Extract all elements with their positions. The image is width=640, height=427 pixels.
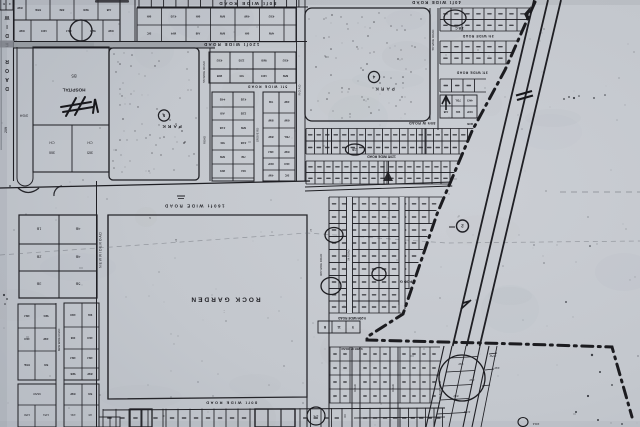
svg-text:7/B: 7/B	[241, 155, 245, 159]
svg-text:4B: 4B	[75, 255, 80, 259]
svg-text:40ft WIDE ROAD: 40ft WIDE ROAD	[411, 0, 461, 5]
svg-text:40ft WIDE ROAD: 40ft WIDE ROAD	[319, 254, 323, 276]
svg-text:43/J: 43/J	[66, 29, 72, 33]
svg-text:PARK: PARK	[373, 86, 394, 91]
svg-text:ROCK GARDEN: ROCK GARDEN	[189, 296, 260, 303]
svg-text:5ft WIDE ROAD: 5ft WIDE ROAD	[431, 30, 435, 51]
svg-text:4/W: 4/W	[269, 32, 274, 36]
svg-text:5ft WIDE ROAD: 5ft WIDE ROAD	[247, 84, 287, 88]
svg-text::: :	[223, 310, 224, 315]
svg-text:A/8: A/8	[220, 112, 225, 116]
svg-text:FOO G: FOO G	[400, 280, 412, 284]
svg-text:160ft WIDE ROAD: 160ft WIDE ROAD	[163, 203, 224, 208]
svg-text:B/W: B/W	[467, 122, 473, 126]
svg-text:41/3: 41/3	[87, 336, 93, 340]
svg-text:8/W: 8/W	[283, 74, 288, 78]
svg-text:9/H: 9/H	[88, 313, 92, 317]
svg-text:12/3: 12/3	[240, 112, 246, 116]
svg-text:1: 1	[175, 238, 177, 242]
svg-text:3/M: 3/M	[59, 8, 64, 12]
svg-text:R O A D: R O A D	[298, 84, 302, 96]
svg-text:41/3: 41/3	[219, 126, 225, 130]
svg-text:N E W W I D E R O A D: N E W W I D E R O A D	[99, 232, 103, 268]
svg-text:A/8: A/8	[195, 32, 200, 36]
svg-text:R/3: R/3	[70, 336, 75, 340]
svg-text:44/3: 44/3	[240, 141, 246, 145]
svg-text:5/C: 5/C	[285, 174, 289, 178]
svg-text:80ft W ROAD: 80ft W ROAD	[409, 121, 436, 125]
svg-text:20ft: 20ft	[4, 127, 8, 133]
svg-text:11: 11	[337, 325, 341, 329]
svg-text:O: O	[5, 67, 9, 73]
svg-text:43/J: 43/J	[268, 150, 274, 154]
svg-text:7/B: 7/B	[269, 100, 273, 104]
svg-text:ROAD: ROAD	[391, 384, 395, 392]
svg-text:1014: 1014	[532, 422, 539, 426]
svg-text:9/H: 9/H	[147, 15, 152, 19]
svg-text:W/8: W/8	[217, 74, 223, 78]
svg-text:43/J: 43/J	[268, 15, 274, 19]
svg-text:W/8: W/8	[90, 29, 96, 33]
svg-text:1: 1	[310, 228, 312, 232]
svg-text:4B: 4B	[75, 227, 80, 231]
svg-text:ROAD: ROAD	[203, 136, 207, 144]
svg-text:3/W: 3/W	[458, 362, 463, 366]
svg-text:3ft WIDE ROAD: 3ft WIDE ROAD	[456, 70, 487, 74]
svg-text:80ft WIDE ROAD: 80ft WIDE ROAD	[205, 401, 258, 406]
svg-text:W/8: W/8	[70, 372, 75, 376]
svg-text:8/W: 8/W	[17, 6, 22, 10]
svg-text:1BC: 1BC	[454, 26, 463, 30]
svg-text:1251: 1251	[43, 413, 49, 417]
svg-text:6/W: 6/W	[220, 155, 225, 159]
svg-text:A/8: A/8	[106, 8, 111, 12]
svg-text:2B: 2B	[36, 255, 41, 259]
svg-text:W/8: W/8	[83, 8, 89, 12]
svg-text:GROVE RD: GROVE RD	[256, 128, 260, 142]
svg-text:44/3: 44/3	[467, 99, 473, 103]
svg-text:3/GH: 3/GH	[19, 114, 28, 118]
svg-text:9/H: 9/H	[196, 15, 201, 19]
svg-text:43/J: 43/J	[70, 356, 76, 360]
svg-text:9:20ft WIDE ROAD: 9:20ft WIDE ROAD	[337, 316, 366, 320]
svg-text:5ft ROAD: 5ft ROAD	[347, 249, 351, 260]
svg-text:12/3: 12/3	[261, 74, 267, 78]
svg-text:A: A	[5, 76, 9, 82]
svg-text:HOSPITAL: HOSPITAL	[62, 87, 85, 92]
svg-text:6/W: 6/W	[70, 392, 75, 396]
svg-text:W/4: W/4	[171, 32, 177, 36]
svg-text:43/J: 43/J	[282, 59, 288, 63]
svg-text:RD: RD	[344, 414, 347, 418]
svg-text:9/H: 9/H	[245, 32, 250, 36]
svg-text:365: 365	[87, 151, 93, 155]
svg-text:5: 5	[352, 325, 354, 329]
svg-text:43/J: 43/J	[216, 59, 222, 63]
svg-text:31/P: 31/P	[268, 162, 274, 166]
svg-text:6/W: 6/W	[284, 119, 289, 123]
svg-text:1250: 1250	[24, 413, 30, 417]
svg-text:6/W: 6/W	[220, 15, 225, 19]
svg-text:W/4: W/4	[43, 314, 48, 318]
svg-text:44/3: 44/3	[70, 313, 76, 317]
svg-text:41/3: 41/3	[284, 162, 290, 166]
svg-text:73/L: 73/L	[455, 99, 461, 103]
svg-text:CH: CH	[87, 141, 93, 145]
svg-text:66/98: 66/98	[33, 392, 41, 396]
svg-text:R: R	[5, 58, 9, 64]
svg-text:43/J: 43/J	[87, 356, 93, 360]
svg-text:67/E: 67/E	[24, 363, 30, 367]
svg-text:2/W: 2/W	[494, 366, 499, 370]
svg-text:175: 175	[313, 414, 318, 418]
svg-text:67/E: 67/E	[35, 8, 41, 12]
svg-text:1B: 1B	[36, 227, 41, 231]
svg-text:W/8: W/8	[261, 59, 267, 63]
svg-text:8/W: 8/W	[453, 394, 458, 398]
svg-text:6/W: 6/W	[19, 29, 24, 33]
svg-text:366: 366	[49, 151, 55, 155]
svg-text:120ft WIDE ROAD: 120ft WIDE ROAD	[203, 42, 259, 47]
svg-text:5/C: 5/C	[44, 363, 48, 367]
svg-text:5/C: 5/C	[88, 392, 92, 396]
svg-text:6/W: 6/W	[220, 32, 225, 36]
svg-text:73/L: 73/L	[284, 135, 290, 139]
svg-text:3B: 3B	[36, 282, 41, 286]
svg-text:8/W: 8/W	[268, 135, 273, 139]
svg-text:8/W: 8/W	[87, 372, 92, 376]
svg-text:4/W: 4/W	[244, 15, 249, 19]
svg-text:12/3: 12/3	[238, 59, 244, 63]
svg-text:B5: B5	[71, 74, 77, 79]
svg-text:A/8: A/8	[443, 110, 448, 114]
svg-text:3ft WIDE ROAD: 3ft WIDE ROAD	[462, 34, 493, 38]
svg-text:PARK: PARK	[160, 124, 181, 129]
svg-text:NEW WIDE ROAD: NEW WIDE ROAD	[57, 329, 61, 352]
svg-text:CH: CH	[49, 141, 55, 145]
svg-text:8/W: 8/W	[268, 119, 273, 123]
svg-text:116: 116	[352, 147, 358, 151]
svg-text:31/P: 31/P	[467, 110, 473, 114]
svg-text:6/W: 6/W	[284, 150, 289, 154]
svg-text:4/W: 4/W	[284, 100, 289, 104]
svg-text:6/W: 6/W	[108, 29, 113, 33]
svg-text:120ft WIDE ROAD: 120ft WIDE ROAD	[367, 154, 396, 158]
svg-text:12/3: 12/3	[41, 29, 47, 33]
svg-text:4/W: 4/W	[43, 337, 48, 341]
svg-text:ROAD: ROAD	[353, 384, 357, 392]
svg-text:5B: 5B	[75, 282, 80, 286]
svg-text:2: 2	[461, 223, 464, 228]
svg-text:W: W	[4, 14, 9, 20]
svg-text:9/H: 9/H	[241, 169, 245, 173]
svg-text:80ft WIDE ROAD: 80ft WIDE ROAD	[218, 1, 277, 6]
svg-text:W/4: W/4	[220, 169, 225, 173]
svg-text:41/3: 41/3	[24, 337, 30, 341]
svg-text:43/J: 43/J	[24, 314, 30, 318]
svg-text:6/W: 6/W	[241, 126, 246, 130]
svg-text:41/3: 41/3	[240, 98, 246, 102]
svg-text:4/W: 4/W	[268, 174, 273, 178]
svg-text:D: D	[5, 85, 9, 91]
svg-text:44/3: 44/3	[219, 98, 225, 102]
svg-text:4/7W: 4/7W	[463, 410, 470, 414]
svg-text:3/F: 3/F	[88, 413, 92, 417]
svg-text:5ft WIDE ROAD: 5ft WIDE ROAD	[202, 60, 206, 82]
svg-text:41/3: 41/3	[170, 15, 176, 19]
svg-text:5/C: 5/C	[220, 141, 224, 145]
svg-text:4/31: 4/31	[70, 413, 76, 417]
svg-text:D: D	[5, 32, 9, 38]
svg-text:9/H: 9/H	[456, 110, 461, 114]
svg-text:4/W: 4/W	[469, 378, 474, 382]
